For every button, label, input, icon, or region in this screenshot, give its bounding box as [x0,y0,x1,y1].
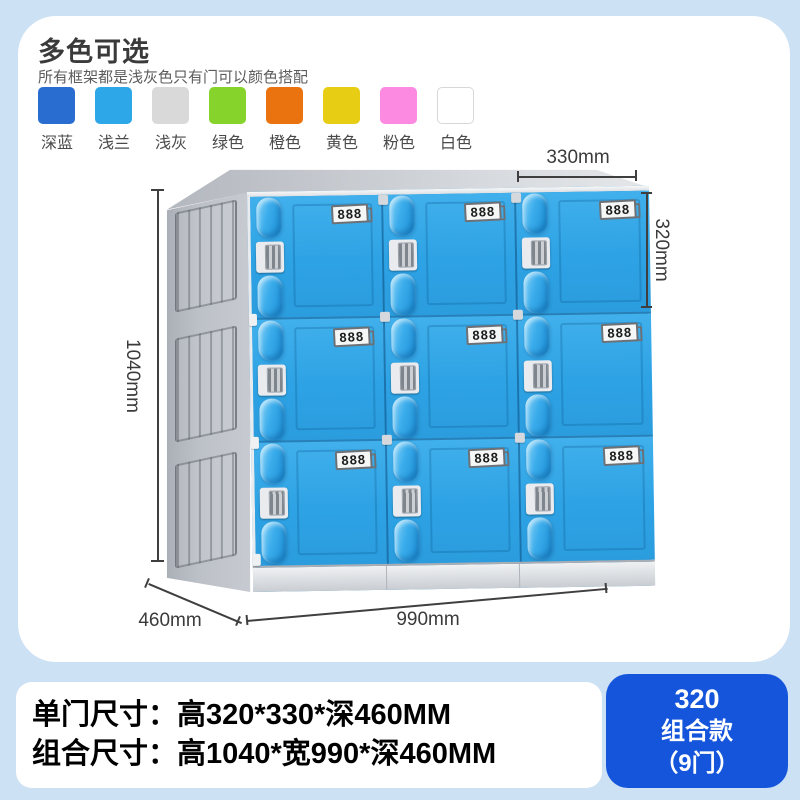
handle-recess [267,367,283,392]
color-swatch-label: 粉色 [380,129,418,153]
side-section [175,199,237,312]
door-number-plate: 888 [335,449,373,470]
latch-clip [515,433,525,443]
color-option-1: 深蓝 [38,87,76,153]
door-hinge-bumper [394,519,420,561]
dim-label-total-height: 1040mm [121,339,143,413]
door-handle [256,241,284,272]
spec-line-single-door: 单门尺寸：高320*330*深460MM [32,696,602,735]
color-swatch-label: 橙色 [266,129,304,153]
handle-recess [269,490,285,515]
color-option-8: 白色 [437,87,475,153]
locker-door-r2c1: 888 [252,318,387,443]
color-option-7: 粉色 [380,87,418,153]
hinge-clip [251,437,259,449]
color-options: 深蓝浅兰浅灰绿色橙色黄色粉色白色 [38,87,494,153]
locker-door-r1c2: 888 [383,193,518,318]
dim-label-door-width: 330mm [546,147,609,169]
locker-door-r2c3: 888 [518,314,653,439]
hinge-clip [249,314,257,326]
latch-clip [511,193,521,203]
color-swatch [266,87,303,124]
color-swatch [323,87,360,124]
color-swatch-label: 黄色 [323,129,361,153]
dim-tick [517,171,519,182]
door-hinge-bumper [260,443,286,483]
hinge-clip [253,554,261,566]
locker-door-r3c3: 888 [520,437,655,562]
color-swatch-label: 绿色 [209,129,247,153]
color-swatch-label: 浅灰 [152,129,190,153]
color-option-5: 橙色 [266,87,304,153]
door-hinge-bumper [524,316,550,356]
door-handle [258,364,286,395]
badge-model-type: 组合款 [661,716,733,748]
door-hinge-bumper [523,271,549,313]
spec-bar: 单门尺寸：高320*330*深460MM 组合尺寸：高1040*宽990*深46… [16,682,602,788]
locker-door-r2c2: 888 [385,316,520,441]
dim-line-total-height [157,190,159,562]
dim-tick [635,170,637,181]
door-hinge-bumper [257,275,283,317]
color-option-2: 浅兰 [95,87,133,153]
dim-tick [641,306,652,308]
handle-recess [531,240,547,265]
door-hinge-bumper [527,517,553,559]
page-title: 多色可选 [38,30,150,69]
color-option-4: 绿色 [209,87,247,153]
badge-model-number: 320 [674,682,719,716]
locker-door-r1c1: 888 [250,195,385,320]
model-badge: 320 组合款 （9门） [606,674,788,788]
door-hinge-bumper [258,320,284,360]
handle-recess [535,486,551,511]
door-handle [389,239,417,270]
door-hinge-bumper [389,195,415,235]
page-subtitle: 所有框架都是浅灰色只有门可以颜色搭配 [38,66,308,87]
color-option-6: 黄色 [323,87,361,153]
door-hinge-bumper [526,439,552,479]
dim-tick [641,192,652,194]
door-number-plate: 888 [466,324,504,345]
dim-line-door-width [517,176,637,178]
dim-label-depth: 460mm [138,610,201,632]
door-handle [524,360,552,391]
locker-side-panel [163,190,251,594]
door-handle [391,362,419,393]
latch-clip [382,435,392,445]
dim-label-door-height: 320mm [650,218,672,281]
color-option-3: 浅灰 [152,87,190,153]
door-number-plate: 888 [468,447,506,468]
locker-door-r1c3: 888 [516,191,651,316]
door-handle [526,483,554,514]
door-number-plate: 888 [333,326,371,347]
dim-line-door-height [646,193,648,307]
door-handle [522,237,550,268]
color-swatch [152,87,189,124]
door-number-plate: 888 [603,445,641,466]
locker-front: 888888888888888888888888888 [247,186,652,592]
door-hinge-bumper [259,398,285,440]
door-number-plate: 888 [601,322,639,343]
handle-recess [265,244,281,269]
spec-line-combined: 组合尺寸：高1040*宽990*深460MM [32,735,602,774]
color-swatch [437,87,474,124]
product-spec-image: 多色可选 所有框架都是浅灰色只有门可以颜色搭配 深蓝浅兰浅灰绿色橙色黄色粉色白色… [0,0,800,800]
door-hinge-bumper [391,318,417,358]
latch-clip [380,312,390,322]
door-handle [393,485,421,516]
door-hinge-bumper [256,197,282,237]
color-swatch [380,87,417,124]
color-swatch [38,87,75,124]
door-hinge-bumper [522,193,548,233]
door-hinge-bumper [261,521,287,563]
door-hinge-bumper [525,394,551,436]
dim-label-total-width: 990mm [396,609,459,631]
locker-door-r3c1: 888 [254,441,389,566]
door-hinge-bumper [390,273,416,315]
dim-tick [151,560,164,562]
latch-clip [513,310,523,320]
latch-clip [378,195,388,205]
color-swatch-label: 白色 [437,129,475,153]
color-swatch [95,87,132,124]
door-handle [260,487,288,518]
color-swatch [209,87,246,124]
door-number-plate: 888 [331,203,369,224]
badge-door-count: （9门） [654,748,739,780]
handle-recess [400,365,416,390]
color-swatch-label: 深蓝 [38,129,76,153]
dim-tick [151,189,164,191]
side-section [175,325,237,442]
door-hinge-bumper [392,396,418,438]
handle-recess [533,363,549,388]
handle-recess [402,488,418,513]
color-swatch-label: 浅兰 [95,129,133,153]
door-hinge-bumper [393,441,419,481]
door-number-plate: 888 [599,199,637,220]
side-section [175,451,237,568]
locker-door-r3c2: 888 [387,439,522,564]
handle-recess [398,242,414,267]
door-number-plate: 888 [464,201,502,222]
